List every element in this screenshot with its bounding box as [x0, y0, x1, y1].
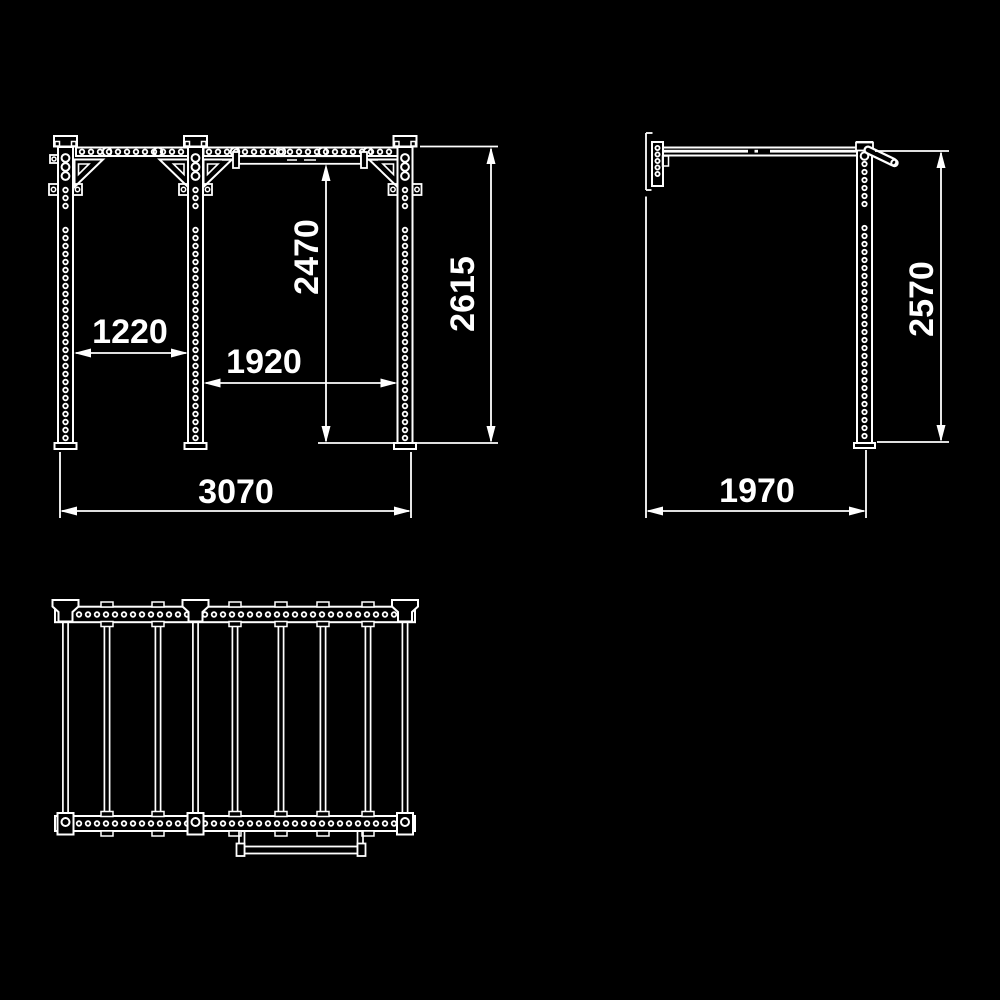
side-view-drawing	[646, 133, 898, 518]
dimension-label-overall-height: 2615	[444, 256, 482, 332]
dimension-label-pullup-bar-height: 2470	[288, 219, 326, 295]
technical-drawing-canvas: 1220 1920 3070 2470 2615 2570 1970	[0, 0, 1000, 1000]
dimension-label-side-overall-height: 2570	[903, 261, 941, 337]
rig-dimension-drawing: 1220 1920 3070 2470 2615 2570 1970	[0, 0, 1000, 1000]
dimension-label-left-bay-width: 1220	[92, 313, 168, 351]
top-view-drawing	[53, 600, 419, 856]
dimension-label-overall-width: 3070	[198, 473, 274, 511]
front-view-drawing	[49, 136, 422, 449]
dimension-label-side-overall-depth: 1970	[719, 472, 795, 510]
dimension-label-right-bay-width: 1920	[226, 343, 302, 381]
